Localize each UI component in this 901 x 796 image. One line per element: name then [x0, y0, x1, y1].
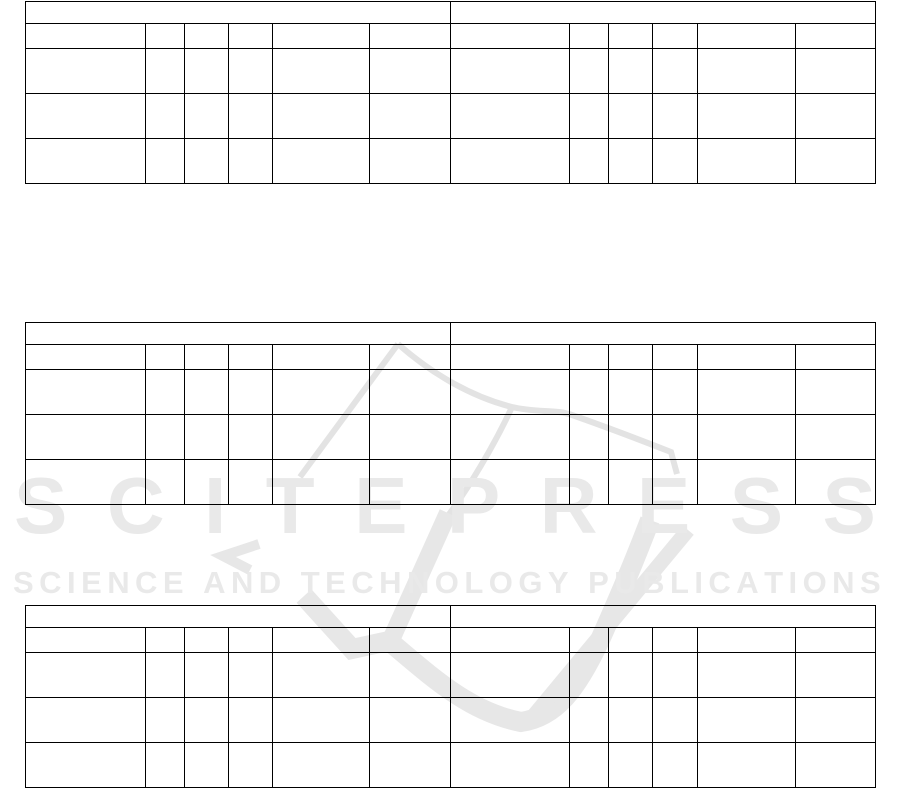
table-row	[26, 94, 451, 139]
watermark-letter: O	[803, 567, 827, 598]
table-cell	[450, 415, 569, 460]
watermark-letter: D	[259, 567, 281, 598]
table-cell	[450, 653, 569, 698]
table-cell	[569, 94, 608, 139]
table-cell	[146, 139, 185, 184]
table-cell	[370, 415, 451, 460]
watermark-letter: S	[13, 567, 34, 598]
table-caption-cell	[26, 606, 451, 628]
table-header-cell	[652, 24, 697, 49]
table-row	[450, 743, 875, 788]
table-header-cell	[229, 345, 273, 370]
table-cell	[697, 415, 795, 460]
table-cell	[26, 49, 146, 94]
watermark-letter: T	[301, 567, 320, 598]
table-header-row	[450, 24, 875, 49]
table-cell	[795, 460, 875, 505]
table-cell	[273, 139, 370, 184]
table-header-cell	[26, 24, 146, 49]
watermark-letter: O	[435, 567, 459, 598]
table-1	[25, 1, 876, 184]
table-cell	[795, 698, 875, 743]
watermark-letter: N	[832, 567, 854, 598]
table-header-cell	[146, 345, 185, 370]
table-cell	[608, 94, 652, 139]
table-header-cell	[608, 24, 652, 49]
table-row	[450, 698, 875, 743]
table-cell	[697, 743, 795, 788]
table-row	[26, 370, 451, 415]
table-cell	[370, 139, 451, 184]
table-caption-row	[26, 323, 451, 345]
table-header-cell	[697, 628, 795, 653]
watermark-letter	[287, 567, 296, 598]
watermark-letter: I	[694, 567, 703, 598]
table-header-cell	[185, 628, 229, 653]
table-cell	[273, 415, 370, 460]
table-cell	[450, 460, 569, 505]
table-cell	[569, 743, 608, 788]
table-header-cell	[450, 24, 569, 49]
table-cell	[146, 370, 185, 415]
watermark-letter: E	[325, 567, 346, 598]
watermark-letter: U	[614, 567, 636, 598]
watermark-letter	[189, 567, 198, 598]
table-cell	[185, 415, 229, 460]
table-cell	[569, 139, 608, 184]
table-cell	[569, 49, 608, 94]
table-cell	[273, 460, 370, 505]
table-row	[26, 460, 451, 505]
table-cell	[370, 743, 451, 788]
table-row	[26, 698, 451, 743]
table-cell	[185, 94, 229, 139]
watermark-tagline-text: SCIENCE AND TECHNOLOGY PUBLICATIONS	[13, 567, 881, 598]
table-cell	[652, 139, 697, 184]
table-cell	[185, 743, 229, 788]
table-cell	[229, 743, 273, 788]
table-cell	[229, 49, 273, 94]
watermark-letter: L	[670, 567, 689, 598]
table-cell	[795, 94, 875, 139]
table-2	[25, 322, 876, 505]
table-header-cell	[652, 628, 697, 653]
table-cell	[697, 139, 795, 184]
table-cell	[229, 415, 273, 460]
table-caption-cell	[26, 2, 451, 24]
table-1-right-half	[450, 1, 876, 184]
table-row	[26, 139, 451, 184]
table-header-cell	[273, 345, 370, 370]
table-cell	[450, 94, 569, 139]
table-cell	[26, 370, 146, 415]
table-row	[450, 460, 875, 505]
watermark-letter: I	[789, 567, 798, 598]
table-cell	[652, 653, 697, 698]
watermark-letter	[574, 567, 583, 598]
table-cell	[229, 653, 273, 698]
table-caption-cell	[26, 323, 451, 345]
table-cell	[26, 139, 146, 184]
table-cell	[273, 49, 370, 94]
table-row	[450, 94, 875, 139]
table-cell	[273, 653, 370, 698]
watermark-letter: C	[351, 567, 373, 598]
table-header-cell	[229, 24, 273, 49]
table-header-cell	[569, 628, 608, 653]
table-2-right-half	[450, 322, 876, 505]
table-header-cell	[569, 345, 608, 370]
table-1-left-half	[25, 1, 451, 184]
table-3-left-half	[25, 605, 451, 788]
table-cell	[652, 698, 697, 743]
watermark-letter: I	[67, 567, 76, 598]
table-cell	[26, 415, 146, 460]
table-cell	[697, 370, 795, 415]
table-cell	[450, 698, 569, 743]
table-header-cell	[697, 24, 795, 49]
table-header-cell	[370, 24, 451, 49]
table-cell	[185, 698, 229, 743]
table-cell	[229, 698, 273, 743]
watermark-letter: E	[81, 567, 102, 598]
table-cell	[652, 460, 697, 505]
table-cell	[795, 370, 875, 415]
table-cell	[273, 94, 370, 139]
table-cell	[229, 460, 273, 505]
table-header-cell	[229, 628, 273, 653]
table-cell	[608, 370, 652, 415]
table-header-cell	[26, 628, 146, 653]
table-cell	[697, 460, 795, 505]
table-header-row	[450, 345, 875, 370]
table-cell	[569, 415, 608, 460]
table-cell	[370, 653, 451, 698]
table-cell	[569, 653, 608, 698]
table-header-cell	[697, 345, 795, 370]
watermark-letter: C	[708, 567, 730, 598]
watermark-letter: C	[135, 567, 157, 598]
table-row	[26, 49, 451, 94]
table-cell	[273, 370, 370, 415]
watermark-letter: L	[464, 567, 483, 598]
table-cell	[26, 653, 146, 698]
table-cell	[652, 49, 697, 94]
table-caption-cell	[450, 606, 875, 628]
watermark-letter: N	[231, 567, 253, 598]
table-header-cell	[795, 628, 875, 653]
table-row	[450, 139, 875, 184]
watermark-letter: N	[407, 567, 429, 598]
table-cell	[229, 139, 273, 184]
table-header-cell	[185, 345, 229, 370]
table-cell	[608, 743, 652, 788]
watermark-letter: S	[860, 567, 881, 598]
table-row	[450, 370, 875, 415]
table-cell	[273, 698, 370, 743]
table-cell	[569, 698, 608, 743]
table-cell	[697, 49, 795, 94]
table-header-cell	[273, 628, 370, 653]
table-cell	[26, 460, 146, 505]
table-row	[26, 415, 451, 460]
table-cell	[795, 49, 875, 94]
watermark-letter: P	[588, 567, 609, 598]
watermark-letter: C	[39, 567, 61, 598]
table-cell	[185, 653, 229, 698]
table-cell	[273, 743, 370, 788]
table-cell	[146, 49, 185, 94]
table-cell	[652, 743, 697, 788]
table-caption-row	[26, 606, 451, 628]
table-cell	[370, 460, 451, 505]
table-header-cell	[608, 345, 652, 370]
table-header-row	[26, 628, 451, 653]
table-header-cell	[146, 628, 185, 653]
table-cell	[795, 743, 875, 788]
watermark-letter: H	[379, 567, 401, 598]
table-cell	[146, 94, 185, 139]
table-cell	[370, 370, 451, 415]
table-cell	[26, 698, 146, 743]
table-header-cell	[370, 345, 451, 370]
watermark-letter: G	[518, 567, 542, 598]
table-row	[26, 743, 451, 788]
table-header-cell	[146, 24, 185, 49]
table-header-row	[450, 628, 875, 653]
table-cell	[26, 743, 146, 788]
table-3	[25, 605, 876, 788]
table-cell	[608, 49, 652, 94]
table-header-cell	[26, 345, 146, 370]
table-header-cell	[569, 24, 608, 49]
table-cell	[608, 698, 652, 743]
table-cell	[229, 370, 273, 415]
table-row	[450, 653, 875, 698]
table-cell	[370, 49, 451, 94]
table-caption-row	[450, 323, 875, 345]
table-cell	[652, 415, 697, 460]
watermark-letter: Y	[548, 567, 569, 598]
table-header-cell	[795, 24, 875, 49]
table-caption-cell	[450, 323, 875, 345]
watermark-letter: A	[736, 567, 758, 598]
table-caption-cell	[450, 2, 875, 24]
table-header-cell	[370, 628, 451, 653]
table-cell	[608, 460, 652, 505]
table-caption-row	[450, 606, 875, 628]
table-cell	[370, 94, 451, 139]
table-cell	[697, 653, 795, 698]
watermark-letter: N	[107, 567, 129, 598]
table-cell	[697, 94, 795, 139]
table-cell	[450, 743, 569, 788]
table-header-cell	[608, 628, 652, 653]
table-header-cell	[273, 24, 370, 49]
watermark-letter: O	[489, 567, 513, 598]
table-cell	[569, 370, 608, 415]
table-cell	[185, 49, 229, 94]
table-cell	[450, 139, 569, 184]
table-cell	[450, 49, 569, 94]
table-cell	[608, 415, 652, 460]
table-cell	[185, 139, 229, 184]
table-cell	[146, 415, 185, 460]
watermark-letter: T	[764, 567, 783, 598]
table-cell	[697, 698, 795, 743]
table-cell	[608, 139, 652, 184]
table-header-cell	[795, 345, 875, 370]
table-cell	[185, 370, 229, 415]
table-cell	[450, 370, 569, 415]
table-row	[450, 415, 875, 460]
table-cell	[652, 370, 697, 415]
table-cell	[26, 94, 146, 139]
watermark-letter: B	[642, 567, 664, 598]
table-row	[450, 49, 875, 94]
watermark-letter: E	[163, 567, 184, 598]
table-caption-row	[26, 2, 451, 24]
table-cell	[795, 653, 875, 698]
watermark-letter: A	[203, 567, 225, 598]
table-cell	[185, 460, 229, 505]
table-header-row	[26, 24, 451, 49]
table-cell	[146, 743, 185, 788]
table-header-cell	[185, 24, 229, 49]
table-cell	[795, 415, 875, 460]
table-header-row	[26, 345, 451, 370]
table-cell	[146, 698, 185, 743]
table-cell	[569, 460, 608, 505]
table-cell	[370, 698, 451, 743]
table-header-cell	[450, 345, 569, 370]
table-cell	[652, 94, 697, 139]
table-header-cell	[450, 628, 569, 653]
paper-page: SCITEPRESS SCIENCE AND TECHNOLOGY PUBLIC…	[0, 0, 901, 796]
table-header-cell	[652, 345, 697, 370]
table-cell	[146, 653, 185, 698]
table-caption-row	[450, 2, 875, 24]
table-3-right-half	[450, 605, 876, 788]
table-cell	[229, 94, 273, 139]
table-row	[26, 653, 451, 698]
table-cell	[795, 139, 875, 184]
table-cell	[146, 460, 185, 505]
table-cell	[608, 653, 652, 698]
table-2-left-half	[25, 322, 451, 505]
